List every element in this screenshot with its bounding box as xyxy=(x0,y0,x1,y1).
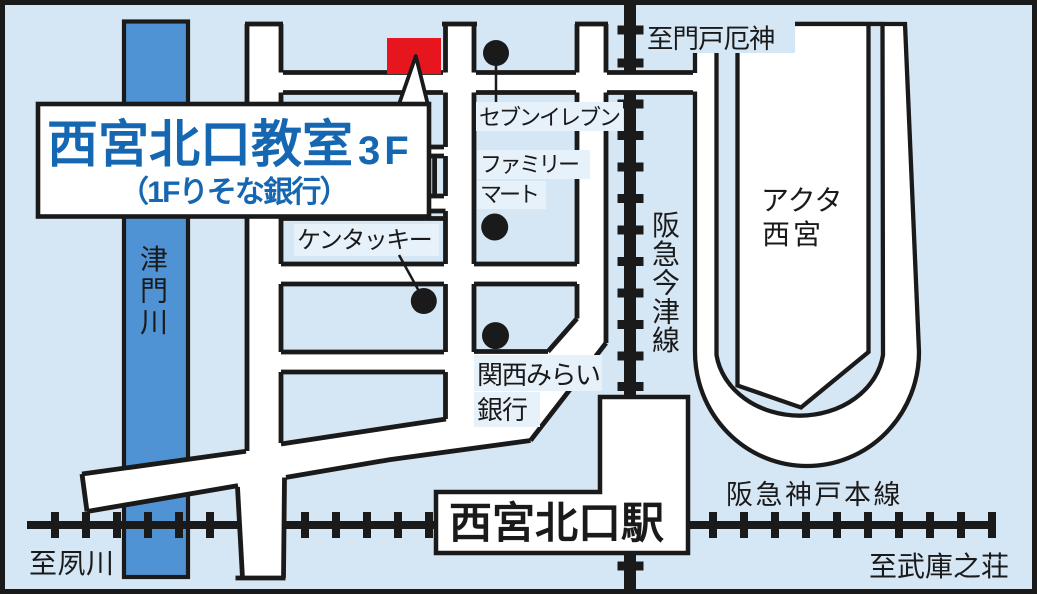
svg-text:アクタ: アクタ xyxy=(761,185,842,216)
svg-text:西宮北口教室: 西宮北口教室 xyxy=(47,116,353,173)
svg-text:阪急神戸本線: 阪急神戸本線 xyxy=(726,480,903,510)
svg-text:関西みらい: 関西みらい xyxy=(477,360,600,390)
svg-text:至門戸厄神: 至門戸厄神 xyxy=(647,24,775,54)
svg-text:3F: 3F xyxy=(358,129,413,173)
svg-text:マート: マート xyxy=(480,182,537,207)
svg-text:津門川: 津門川 xyxy=(140,244,168,338)
svg-text:西宮: 西宮 xyxy=(762,219,824,250)
svg-text:至夙川: 至夙川 xyxy=(29,548,115,579)
svg-text:西宮北口駅: 西宮北口駅 xyxy=(449,500,664,548)
svg-text:（1Fりそな銀行）: （1Fりそな銀行） xyxy=(119,175,348,209)
svg-text:ケンタッキー: ケンタッキー xyxy=(297,227,431,254)
svg-text:阪急今津線: 阪急今津線 xyxy=(652,210,680,356)
svg-text:至武庫之荘: 至武庫之荘 xyxy=(869,551,1009,582)
svg-text:セブンイレブン: セブンイレブン xyxy=(479,105,620,130)
svg-text:銀行: 銀行 xyxy=(477,395,527,425)
svg-text:ファミリー: ファミリー xyxy=(480,152,578,177)
